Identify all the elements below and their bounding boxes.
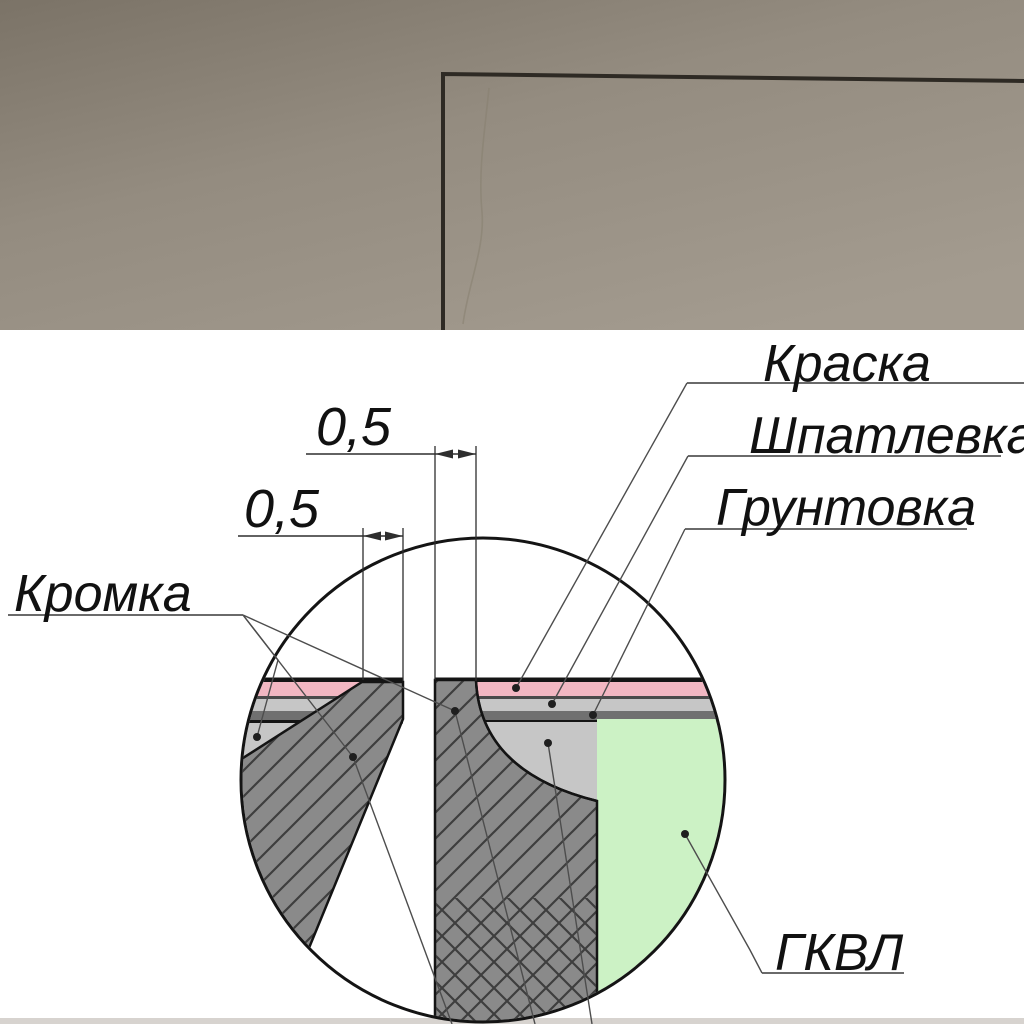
leader-dot [349,753,357,761]
leader-dot [253,733,261,741]
leader-dot [681,830,689,838]
layer-divider-right [470,696,740,699]
label-primer: Грунтовка [716,479,976,537]
dimension-value: 0,5 [316,397,392,457]
ceiling-photo [0,0,1024,332]
label-edge: Кромка [14,565,192,623]
paint-layer-right [470,682,740,696]
filler-layer-right [470,699,740,711]
dimension-value: 0,5 [244,479,320,539]
leader-dot [548,700,556,708]
label-filler: Шпатлевка [749,407,1024,465]
label-paint: Краска [763,335,931,393]
primer-layer-right [470,711,740,720]
leader-dot [544,739,552,747]
leader-dot [589,711,597,719]
leader-dot [512,684,520,692]
surface-line-right [435,678,740,683]
leader-dot [451,707,459,715]
drywall-joint-detail-figure: 0,5 0,5 Краска Шпатлевка Г [0,0,1024,1024]
label-gvl: ГКВЛ [775,924,903,982]
plaster-wall-surface [0,0,1024,331]
